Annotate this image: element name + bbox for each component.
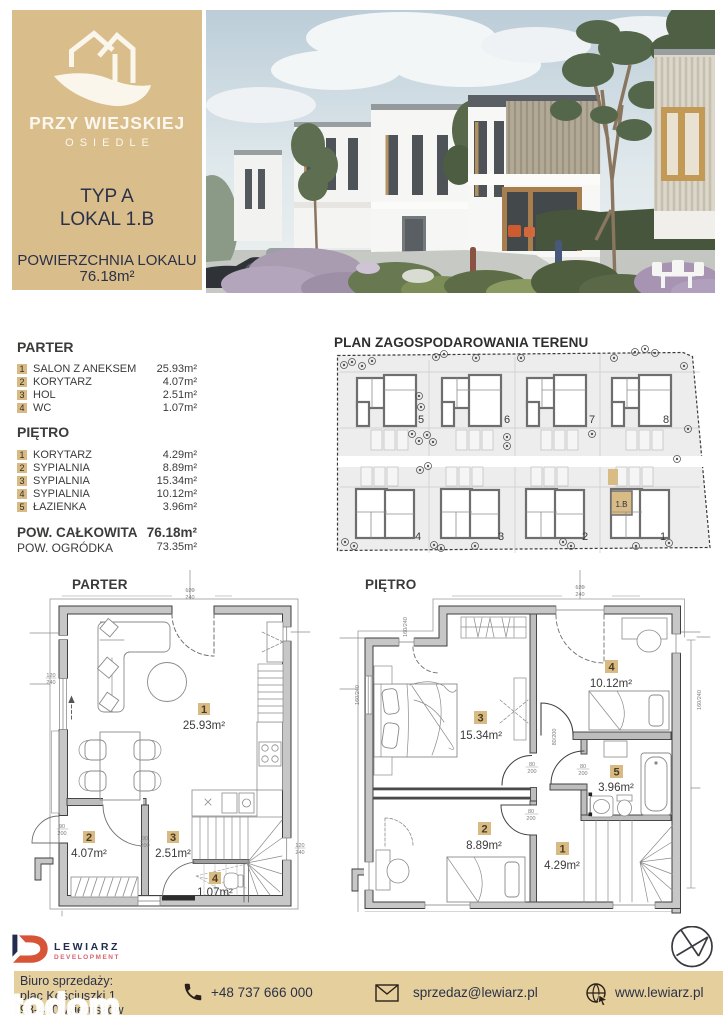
- svg-text:1: 1: [201, 704, 207, 716]
- svg-text:2: 2: [86, 832, 92, 844]
- svg-text:200: 200: [527, 769, 536, 775]
- svg-text:200: 200: [57, 831, 66, 837]
- svg-text:7: 7: [589, 414, 595, 426]
- svg-text:15.34m²: 15.34m²: [460, 730, 502, 742]
- svg-text:25.93m²: 25.93m²: [183, 720, 225, 732]
- svg-text:1: 1: [660, 531, 666, 543]
- svg-text:PIĘTRO: PIĘTRO: [365, 577, 416, 592]
- svg-text:240: 240: [46, 680, 55, 686]
- svg-text:4: 4: [415, 531, 421, 543]
- svg-text:2: 2: [582, 531, 588, 543]
- svg-text:200: 200: [578, 771, 587, 777]
- svg-text:8: 8: [663, 414, 669, 426]
- svg-text:200: 200: [140, 843, 149, 849]
- svg-text:4.29m²: 4.29m²: [544, 860, 580, 872]
- svg-text:2: 2: [481, 824, 487, 836]
- svg-text:DEVELOPMENT: DEVELOPMENT: [54, 954, 120, 961]
- svg-text:160/240: 160/240: [403, 617, 409, 637]
- svg-text:3: 3: [477, 713, 483, 725]
- svg-text:2.51m²: 2.51m²: [155, 848, 191, 860]
- svg-text:4: 4: [608, 662, 615, 674]
- svg-text:4: 4: [212, 873, 219, 885]
- svg-text:1.07m²: 1.07m²: [197, 887, 233, 899]
- svg-text:160/240: 160/240: [355, 685, 361, 705]
- svg-text:5: 5: [418, 414, 424, 426]
- svg-text:80/200: 80/200: [552, 729, 558, 746]
- svg-text:PARTER: PARTER: [72, 577, 128, 592]
- svg-text:5: 5: [613, 767, 619, 779]
- svg-text:200: 200: [526, 816, 535, 822]
- svg-text:4.07m²: 4.07m²: [71, 848, 107, 860]
- svg-text:160/240: 160/240: [697, 690, 703, 710]
- svg-text:1.B: 1.B: [615, 500, 627, 509]
- svg-text:3: 3: [498, 531, 504, 543]
- svg-text:3.96m²: 3.96m²: [598, 782, 634, 794]
- svg-text:3: 3: [170, 832, 176, 844]
- svg-text:240: 240: [295, 850, 304, 856]
- svg-text:8.89m²: 8.89m²: [466, 840, 502, 852]
- svg-text:1: 1: [559, 844, 565, 856]
- svg-text:10.12m²: 10.12m²: [590, 678, 632, 690]
- svg-text:LEWIARZ: LEWIARZ: [54, 941, 120, 953]
- svg-text:6: 6: [504, 414, 510, 426]
